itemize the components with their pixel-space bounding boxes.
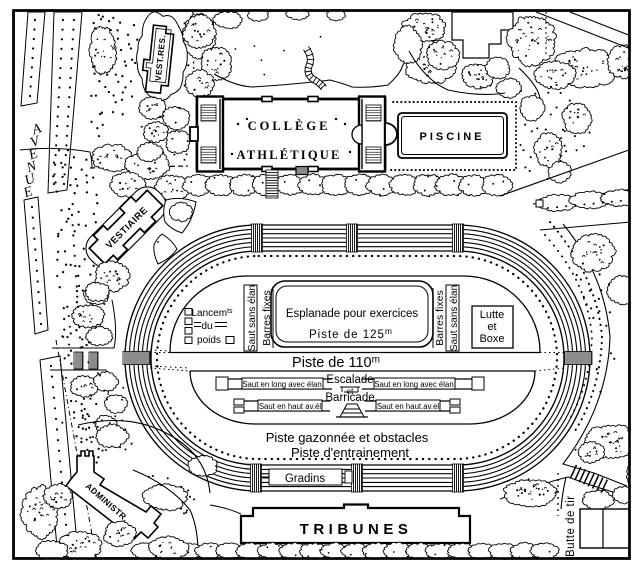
svg-text:Boxe: Boxe (479, 333, 504, 345)
svg-text:Barres fixes: Barres fixes (261, 290, 273, 345)
svg-text:Piste gazonnée et obstacles: Piste gazonnée et obstacles (266, 430, 429, 445)
svg-text:PISCINE: PISCINE (419, 131, 484, 143)
svg-text:Escalade: Escalade (326, 374, 373, 386)
svg-text:Saut sans élan: Saut sans élan (449, 285, 460, 351)
svg-text:du: du (201, 321, 212, 332)
svg-text:Saut en long avec élan: Saut en long avec élan (374, 380, 453, 389)
svg-text:Barricade: Barricade (325, 392, 374, 404)
svg-text:poids: poids (197, 335, 221, 346)
svg-text:Esplanade pour exercices: Esplanade pour exercices (286, 308, 419, 320)
svg-text:Saut en haut.av.el: Saut en haut.av.el (377, 402, 440, 411)
svg-text:Saut sans élan: Saut sans élan (247, 285, 258, 351)
svg-text:ATHLÉTIQUE: ATHLÉTIQUE (236, 148, 341, 162)
svg-text:Piste d'entrainement: Piste d'entrainement (291, 445, 409, 460)
svg-text:Barres fixes: Barres fixes (434, 290, 446, 345)
svg-text:Piste de 125m: Piste de 125m (309, 326, 393, 341)
svg-text:Lutte: Lutte (480, 309, 504, 321)
svg-text:COLLÈGE: COLLÈGE (248, 119, 331, 133)
svg-text:et: et (487, 321, 496, 333)
svg-text:Piste de 110m: Piste de 110m (292, 355, 380, 372)
svg-text:Gradins: Gradins (285, 473, 326, 485)
svg-text:Butte de tir: Butte de tir (565, 495, 577, 557)
svg-text:TRIBUNES: TRIBUNES (300, 521, 413, 538)
svg-text:Lancemts: Lancemts (191, 308, 233, 319)
svg-text:Saut en long avec élan: Saut en long avec élan (242, 380, 321, 389)
svg-text:Saut en haut av.él: Saut en haut av.él (259, 402, 322, 411)
